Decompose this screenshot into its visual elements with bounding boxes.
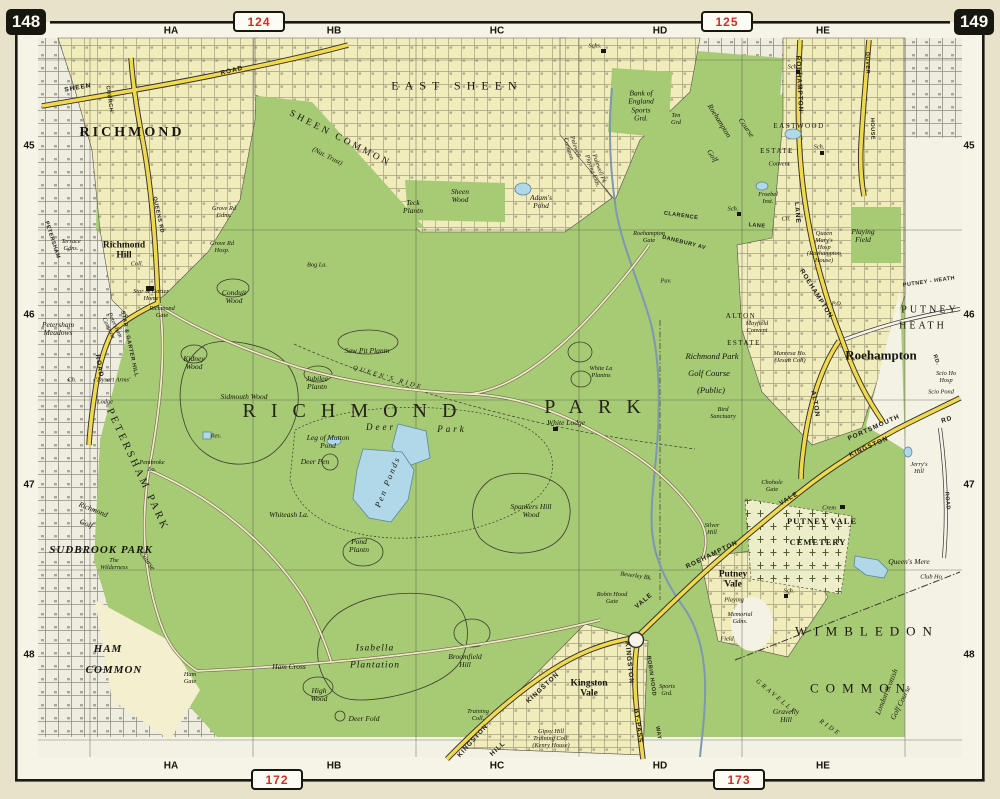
route-number-box: 173 bbox=[713, 769, 765, 790]
grid-column-label: HD bbox=[653, 761, 667, 772]
grid-row-label: 48 bbox=[963, 650, 974, 661]
grid-column-label: HE bbox=[816, 761, 830, 772]
map-canvas bbox=[0, 0, 1000, 799]
route-number-box: 172 bbox=[251, 769, 303, 790]
grid-row-label: 46 bbox=[963, 310, 974, 321]
grid-column-label: HC bbox=[490, 761, 504, 772]
grid-row-label: 47 bbox=[963, 480, 974, 491]
route-number-box: 125 bbox=[701, 11, 753, 32]
page-number-left: 148 bbox=[6, 9, 46, 35]
street-atlas-page: 148 149 RICHMONDEAST SHEENSHEEN COMMON(N… bbox=[0, 0, 1000, 799]
grid-column-label: HB bbox=[327, 761, 341, 772]
route-number-box: 124 bbox=[233, 11, 285, 32]
grid-column-label: HA bbox=[164, 761, 178, 772]
grid-row-label: 45 bbox=[23, 141, 34, 152]
grid-column-label: HD bbox=[653, 26, 667, 37]
page-number-right: 149 bbox=[954, 9, 994, 35]
grid-row-label: 45 bbox=[963, 141, 974, 152]
grid-column-label: HB bbox=[327, 26, 341, 37]
grid-row-label: 47 bbox=[23, 480, 34, 491]
grid-row-label: 46 bbox=[23, 310, 34, 321]
grid-column-label: HC bbox=[490, 26, 504, 37]
grid-column-label: HE bbox=[816, 26, 830, 37]
grid-column-label: HA bbox=[164, 26, 178, 37]
grid-row-label: 48 bbox=[23, 650, 34, 661]
